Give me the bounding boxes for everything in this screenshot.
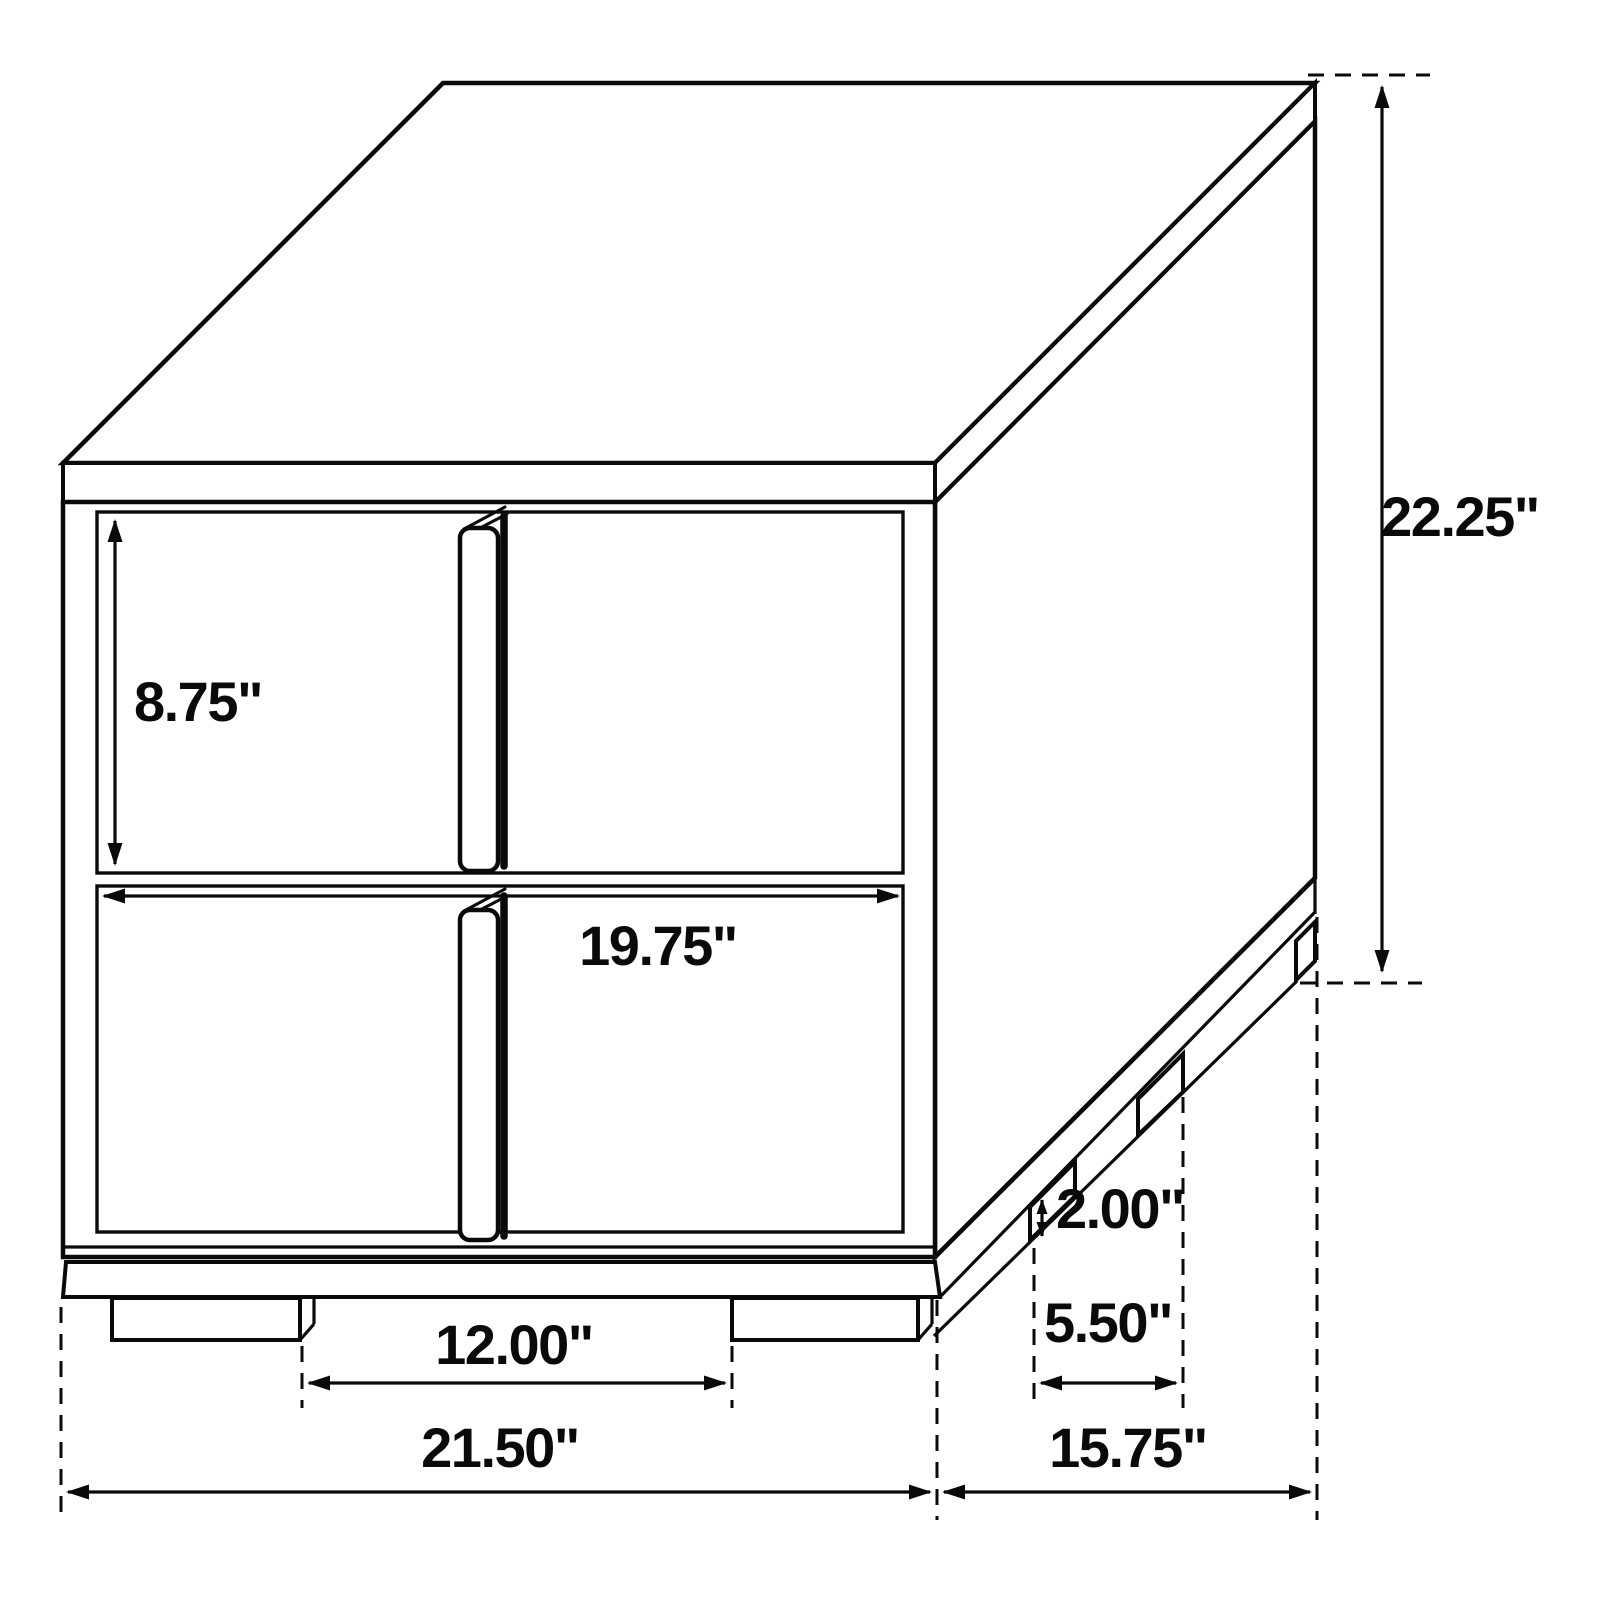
front-leg-right-bevel: [918, 1324, 932, 1340]
front-leg-left: [112, 1298, 300, 1340]
dimension-label-front-leg-spacing: 12.00": [435, 1313, 593, 1376]
front-leg-right: [732, 1298, 918, 1340]
dimension-overall-height: 22.25": [1300, 75, 1539, 983]
dimension-label-overall-depth: 15.75": [1049, 1416, 1207, 1479]
dimension-side-leg-spacing: 5.50": [1034, 1097, 1183, 1410]
dimension-label-overall-width: 21.50": [421, 1416, 579, 1479]
dimension-leg-height: 2.00": [1042, 1177, 1184, 1240]
handle-bottom-drawer: [460, 910, 498, 1240]
front-leg-left-bevel: [300, 1324, 314, 1340]
base-rail-front: [63, 1262, 940, 1297]
top-edge-band-front: [63, 463, 935, 502]
dimension-label-side-leg-spacing: 5.50": [1044, 1291, 1172, 1354]
diagram-canvas: 8.75" 19.75" 22.25" 2.00" 5.50" 12.00" 2…: [0, 0, 1600, 1600]
dimension-label-drawer-height: 8.75": [134, 670, 262, 733]
dimension-label-overall-height: 22.25": [1381, 485, 1539, 548]
dimension-front-leg-spacing: 12.00": [302, 1313, 732, 1408]
handle-top-drawer: [460, 528, 498, 871]
dimension-label-leg-height: 2.00": [1056, 1177, 1184, 1240]
nightstand-dimension-diagram: 8.75" 19.75" 22.25" 2.00" 5.50" 12.00" 2…: [0, 0, 1600, 1600]
side-leg-middle: [1138, 1054, 1183, 1135]
dimension-label-drawer-width: 19.75": [579, 914, 737, 977]
